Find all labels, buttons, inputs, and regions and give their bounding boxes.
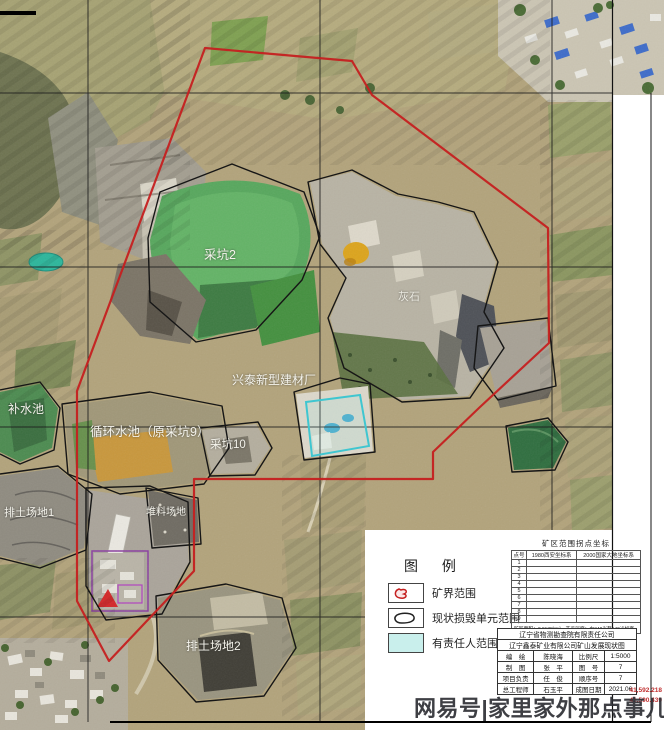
coord-cell (527, 616, 577, 623)
title-block-org-row: 辽宁省物测勘查院有限责任公司 (498, 629, 637, 640)
sys1980-header: 1980西安坐标系 (527, 551, 577, 560)
coord-cell (527, 609, 577, 616)
label-waste-dump-1: 排土场地1 (4, 508, 54, 519)
table-row: 7 (512, 602, 641, 609)
map-sheet-title: 辽宁鑫泰矿业有限公司矿山发展现状图 (498, 640, 637, 651)
table-row: 1 (512, 560, 641, 567)
point-number: 2 (512, 567, 527, 574)
label-circulating-pond: 循环水池（原采坑9） (90, 426, 209, 439)
table-row: 6 (512, 595, 641, 602)
point-number: 9 (512, 616, 527, 623)
coord-cell (527, 595, 577, 602)
field-label: 比例尺 (573, 651, 605, 662)
coordinate-table-title: 矿区范围拐点坐标 (511, 538, 641, 549)
table-row: 5 (512, 588, 641, 595)
damaged-unit-swatch-icon (388, 608, 424, 628)
point-number: 6 (512, 595, 527, 602)
organization-name: 辽宁省物测勘查院有限责任公司 (498, 629, 637, 640)
coord-cell (527, 574, 577, 581)
coord-cell (527, 560, 577, 567)
coord-cell (577, 602, 641, 609)
coord-cell (577, 560, 641, 567)
label-supply-pond: 补水池 (8, 403, 44, 415)
coord-cell (577, 574, 641, 581)
point-number: 5 (512, 588, 527, 595)
legend-label: 现状损毁单元范围 (432, 610, 520, 626)
table-row: 4 (512, 581, 641, 588)
title-block-row: 制 图 张 平 图 号 7 (498, 662, 637, 673)
responsible-area-swatch-icon (388, 633, 424, 653)
legend-label: 有责任人范围 (432, 635, 498, 651)
field-label: 图 号 (573, 662, 605, 673)
coord-cell (577, 588, 641, 595)
table-row: 9 (512, 616, 641, 623)
label-waste-dump-2: 排土场地2 (186, 640, 241, 652)
coord-cell (577, 581, 641, 588)
label-pit-10: 采坑10 (210, 440, 246, 452)
title-block-row: 项目负责 任 俊 顺序号 7 (498, 673, 637, 684)
table-row: 8 (512, 609, 641, 616)
coordinate-table-header: 点号 1980西安坐标系 2000国家大地坐标系 (512, 551, 641, 560)
label-stockpile: 堆料场地 (146, 508, 186, 518)
point-number: 8 (512, 609, 527, 616)
corner-coordinate-table: 矿区范围拐点坐标 点号 1980西安坐标系 2000国家大地坐标系 1 2 3 … (511, 538, 641, 634)
mine-boundary-swatch-icon (388, 583, 424, 603)
coord-cell (527, 602, 577, 609)
point-number: 3 (512, 574, 527, 581)
point-col-header: 点号 (512, 551, 527, 560)
point-number: 4 (512, 581, 527, 588)
map-sheet: 采坑2 灰石 兴泰新型建材厂 补水池 循环水池（原采坑9） 采坑10 排土场地1… (0, 0, 664, 730)
field-label: 编 绘 (498, 651, 534, 662)
legend-label: 矿界范围 (432, 585, 476, 601)
table-row: 2 (512, 567, 641, 574)
sys2000-header: 2000国家大地坐标系 (577, 551, 641, 560)
title-block-row: 编 绘 陈晓海 比例尺 1:5000 (498, 651, 637, 662)
label-pit-2: 采坑2 (204, 249, 236, 262)
label-limestone: 灰石 (398, 292, 420, 303)
field-value: 1:5000 (605, 651, 637, 662)
coord-cell (527, 588, 577, 595)
field-value: 陈晓海 (534, 651, 573, 662)
responsible-area-outline (306, 395, 369, 456)
field-label: 顺序号 (573, 673, 605, 684)
field-label: 制 图 (498, 662, 534, 673)
watermark-text: 网易号|家里家外那点事儿 (414, 691, 664, 723)
coord-cell (527, 581, 577, 588)
field-value: 任 俊 (534, 673, 573, 684)
field-value: 张 平 (534, 662, 573, 673)
coord-cell (577, 616, 641, 623)
field-label: 项目负责 (498, 673, 534, 684)
title-block-title-row: 辽宁鑫泰矿业有限公司矿山发展现状图 (498, 640, 637, 651)
point-number: 7 (512, 602, 527, 609)
field-value: 7 (605, 662, 637, 673)
coord-cell (577, 567, 641, 574)
point-number: 1 (512, 560, 527, 567)
label-xingtai-plant: 兴泰新型建材厂 (232, 374, 316, 386)
field-value: 7 (605, 673, 637, 684)
coord-cell (527, 567, 577, 574)
title-block: 辽宁省物测勘查院有限责任公司 辽宁鑫泰矿业有限公司矿山发展现状图 编 绘 陈晓海… (497, 628, 637, 695)
coord-cell (577, 609, 641, 616)
table-row: 3 (512, 574, 641, 581)
coord-cell (577, 595, 641, 602)
